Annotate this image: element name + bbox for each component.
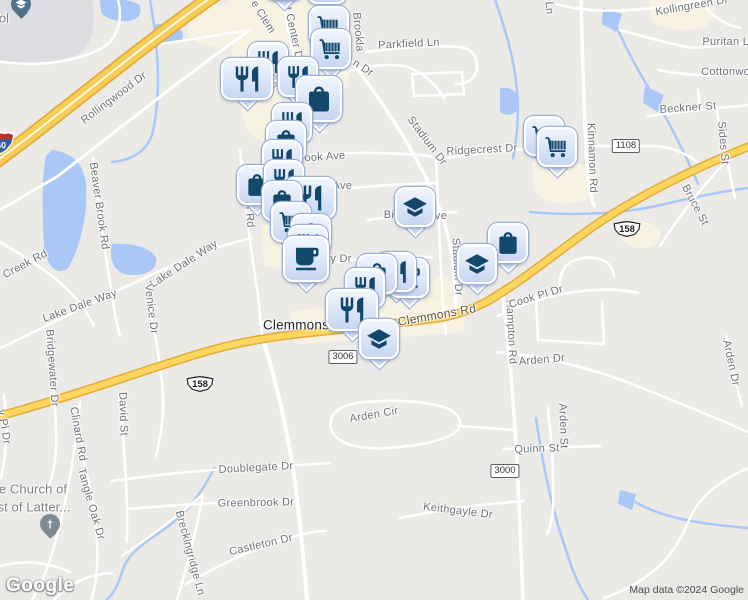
school-marker[interactable] <box>395 187 435 227</box>
graduation-cap-icon <box>464 251 490 277</box>
map-viewport[interactable]: Rollingwood Dre Clemet Center DrBrooklan… <box>0 0 748 600</box>
graduation-cap-icon <box>402 194 428 220</box>
graduation-cap-icon <box>15 0 27 10</box>
fork-knife-icon <box>232 64 262 94</box>
school-marker[interactable] <box>457 244 497 284</box>
shopping-cart-icon <box>318 36 344 62</box>
cafe-marker[interactable] <box>283 236 329 282</box>
cross-icon <box>44 518 56 530</box>
church-pin-marker[interactable] <box>40 514 60 534</box>
google-logo[interactable]: Google <box>6 575 74 597</box>
school-marker[interactable] <box>359 319 399 359</box>
school-pin-marker[interactable] <box>11 0 31 14</box>
coffee-cup-icon <box>291 244 321 274</box>
shopping-cart-icon <box>544 134 570 160</box>
shopping-bag-icon <box>495 230 521 256</box>
shopping-cart-marker[interactable] <box>537 127 577 167</box>
graduation-cap-icon <box>366 326 392 352</box>
shopping-cart-marker[interactable] <box>307 0 347 4</box>
restaurant-marker[interactable] <box>221 58 273 100</box>
